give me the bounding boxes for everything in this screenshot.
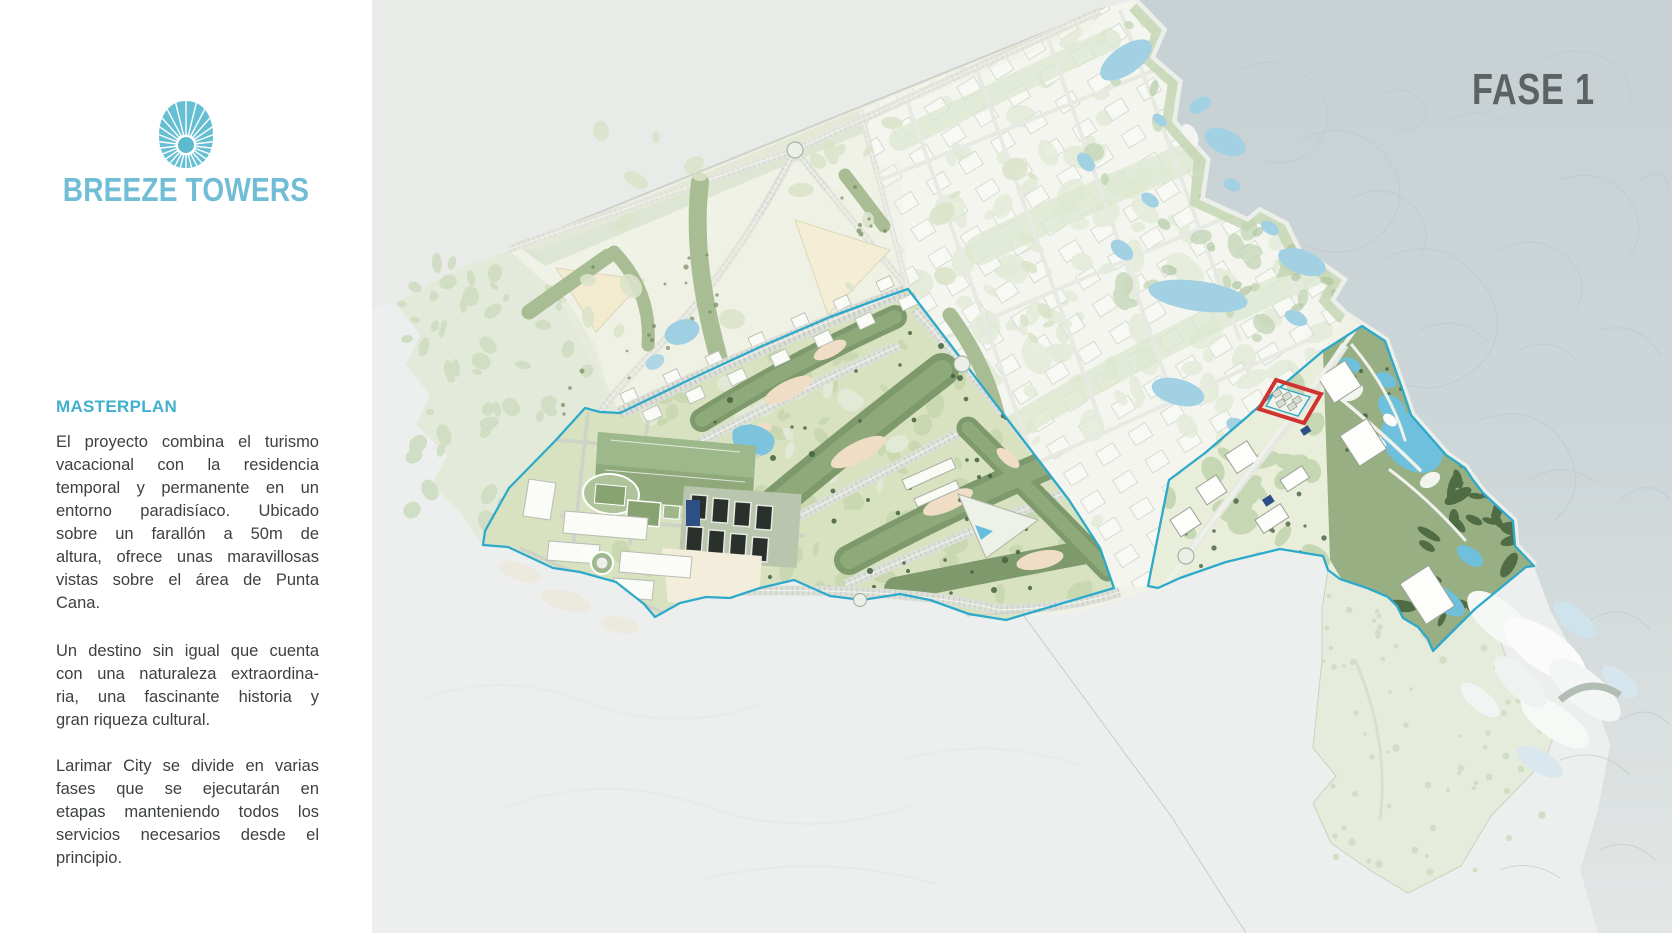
svg-text:FASE 1: FASE 1: [1472, 65, 1595, 114]
